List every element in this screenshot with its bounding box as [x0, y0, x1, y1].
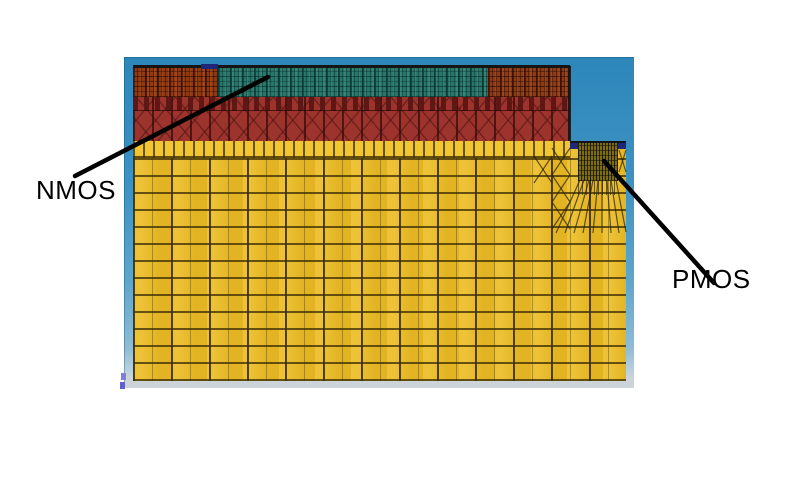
- axis-glyph-segment: [121, 373, 126, 380]
- nmos-drain-strip: [488, 66, 570, 97]
- nmos-contact-dense-row: [133, 97, 570, 111]
- pmos-gate-mesh-region: [578, 143, 618, 181]
- axis-glyph-segment: [120, 382, 125, 389]
- pmos-comb-mesh: [578, 181, 618, 195]
- viewer-axis-glyph: [120, 373, 127, 389]
- nmos-label: NMOS: [36, 177, 116, 203]
- nmos-gate-strip: [218, 66, 488, 97]
- pmos-contact-bar-right: [617, 143, 626, 149]
- nmos-gate-contact-bar: [201, 64, 218, 69]
- figure-canvas: NMOS PMOS: [0, 0, 800, 500]
- tcad-viewport: [124, 57, 634, 388]
- stack-right-edge-line: [568, 66, 571, 141]
- substrate-mesh-region: [133, 141, 626, 381]
- nmos-body-mesh-region: [133, 97, 570, 141]
- substrate-dense-top-row: [133, 141, 570, 158]
- nmos-top-electrode-line: [133, 65, 570, 68]
- pmos-label: PMOS: [672, 266, 751, 292]
- nmos-source-strip: [133, 66, 218, 97]
